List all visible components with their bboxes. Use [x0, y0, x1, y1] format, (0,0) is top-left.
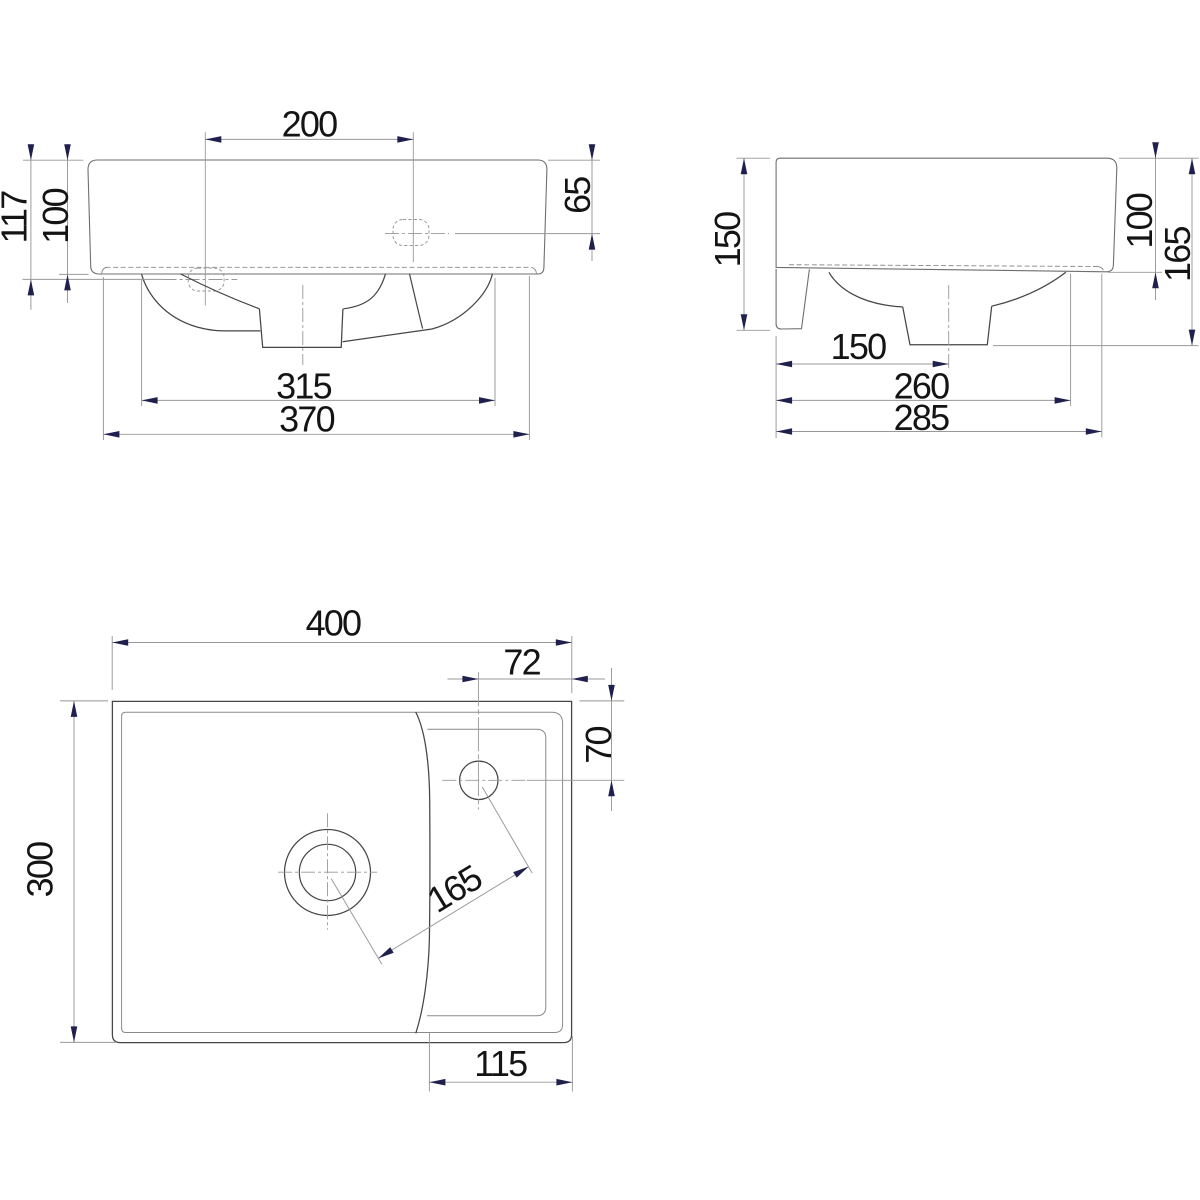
svg-text:117: 117 — [0, 191, 35, 244]
svg-text:400: 400 — [306, 603, 361, 644]
svg-text:370: 370 — [279, 398, 334, 439]
svg-text:72: 72 — [503, 642, 540, 683]
svg-text:300: 300 — [19, 842, 60, 897]
svg-text:150: 150 — [831, 326, 886, 367]
svg-text:150: 150 — [707, 212, 748, 267]
svg-text:285: 285 — [894, 397, 949, 438]
svg-text:115: 115 — [474, 1043, 527, 1084]
svg-text:70: 70 — [578, 727, 619, 764]
svg-text:100: 100 — [1119, 193, 1160, 248]
svg-text:100: 100 — [35, 188, 76, 243]
svg-text:200: 200 — [282, 103, 337, 144]
svg-text:65: 65 — [557, 177, 598, 214]
svg-text:165: 165 — [1157, 226, 1198, 281]
